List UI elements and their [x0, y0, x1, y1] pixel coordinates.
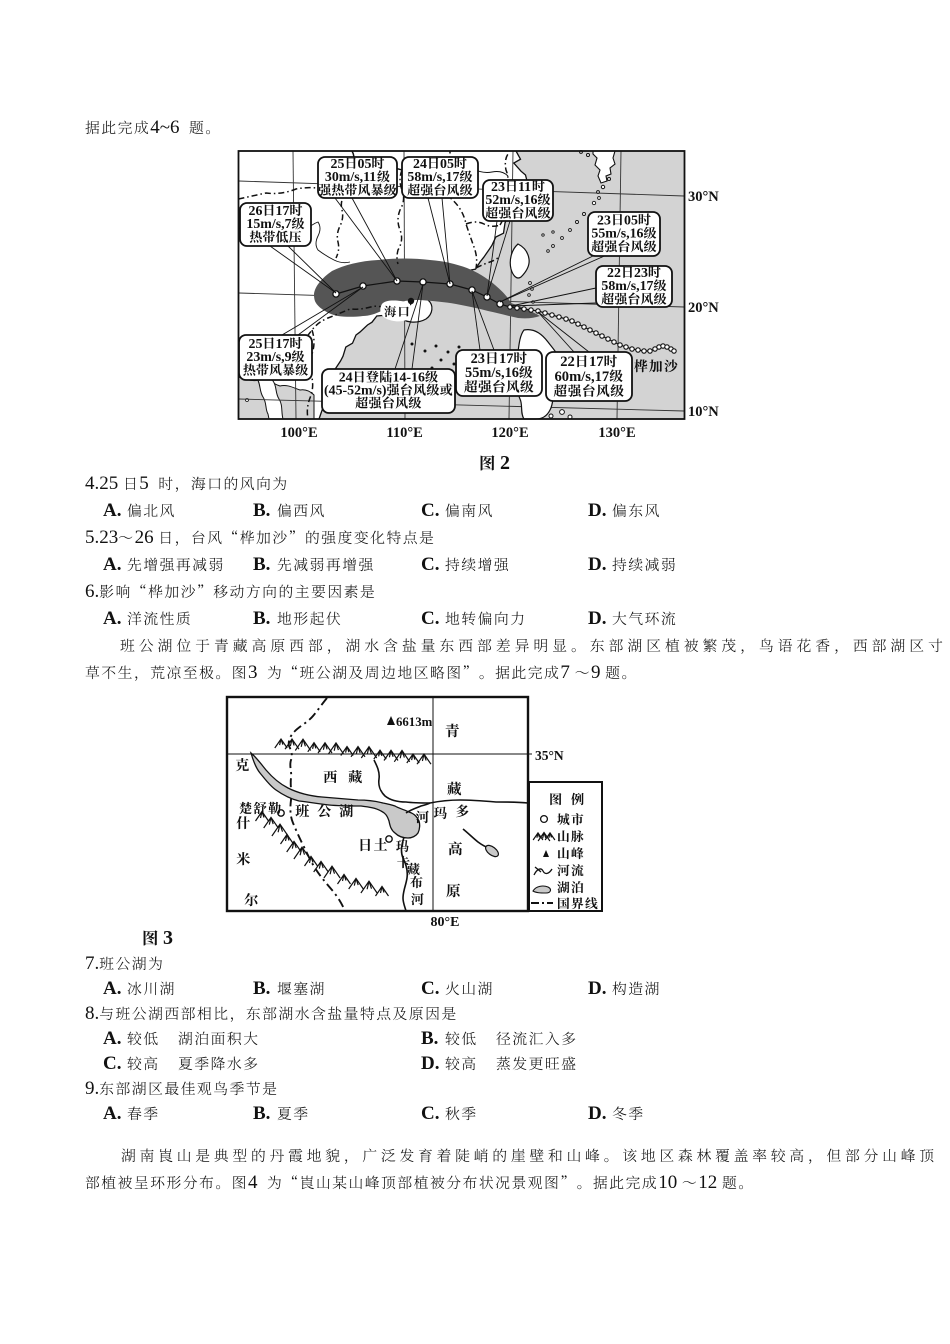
svg-text:12: 12 — [698, 1172, 717, 1193]
svg-text:2: 2 — [500, 452, 510, 474]
svg-text:A.: A. — [103, 608, 121, 629]
svg-text:3: 3 — [248, 662, 258, 683]
svg-text:D.: D. — [588, 1103, 606, 1124]
svg-text:6.: 6. — [85, 581, 99, 602]
svg-text:(45-52m/s): (45-52m/s) — [324, 384, 387, 399]
svg-text:B.: B. — [253, 978, 270, 999]
svg-text:5: 5 — [139, 473, 149, 494]
svg-text:120°E: 120°E — [491, 425, 528, 441]
svg-text:110°E: 110°E — [386, 425, 422, 441]
svg-text:4~6: 4~6 — [150, 117, 179, 138]
svg-text:30°N: 30°N — [688, 189, 719, 205]
svg-text:15m/s,7: 15m/s,7 — [246, 217, 291, 232]
svg-text:22: 22 — [560, 354, 575, 370]
svg-text:30m/s,11: 30m/s,11 — [325, 170, 376, 185]
svg-text:6613m: 6613m — [396, 715, 433, 729]
svg-text:C.: C. — [421, 554, 439, 575]
svg-text:C.: C. — [103, 1053, 121, 1074]
svg-text:9.: 9. — [85, 1078, 99, 1099]
svg-text:4: 4 — [248, 1172, 258, 1193]
svg-text:A.: A. — [103, 1028, 121, 1049]
svg-text:A.: A. — [103, 978, 121, 999]
svg-text:130°E: 130°E — [598, 425, 635, 441]
svg-text:10°N: 10°N — [688, 404, 719, 420]
svg-text:B.: B. — [253, 608, 270, 629]
svg-text:9: 9 — [591, 662, 601, 683]
svg-text:7.: 7. — [85, 953, 99, 974]
svg-text:17: 17 — [589, 354, 604, 370]
svg-text:20°N: 20°N — [688, 300, 719, 316]
svg-text:C.: C. — [421, 500, 439, 521]
svg-text:D.: D. — [588, 608, 606, 629]
svg-text:80°E: 80°E — [431, 915, 460, 930]
svg-text:A.: A. — [103, 500, 121, 521]
svg-text:C.: C. — [421, 608, 439, 629]
svg-text:A.: A. — [103, 1103, 121, 1124]
svg-text:23m/s,9: 23m/s,9 — [246, 350, 291, 365]
svg-text:D.: D. — [588, 500, 606, 521]
svg-text:A.: A. — [103, 554, 121, 575]
svg-text:26: 26 — [135, 527, 154, 548]
svg-text:55m/s,16: 55m/s,16 — [465, 365, 519, 381]
svg-text:D.: D. — [588, 554, 606, 575]
svg-text:10: 10 — [658, 1172, 677, 1193]
svg-text:5.23: 5.23 — [85, 527, 118, 548]
svg-text:58m/s,17: 58m/s,17 — [407, 170, 459, 185]
svg-text:D.: D. — [421, 1053, 439, 1074]
svg-text:8.: 8. — [85, 1003, 99, 1024]
svg-text:35°N: 35°N — [535, 748, 564, 763]
svg-text:55m/s,16: 55m/s,16 — [591, 227, 643, 242]
svg-text:B.: B. — [253, 1103, 270, 1124]
svg-text:60m/s,17: 60m/s,17 — [555, 369, 610, 385]
svg-text:C.: C. — [421, 1103, 439, 1124]
svg-text:52m/s,16: 52m/s,16 — [485, 193, 537, 208]
svg-text:B.: B. — [253, 500, 270, 521]
svg-text:B.: B. — [253, 554, 270, 575]
svg-text:D.: D. — [588, 978, 606, 999]
svg-text:14-16: 14-16 — [393, 371, 425, 386]
svg-text:C.: C. — [421, 978, 439, 999]
svg-text:100°E: 100°E — [280, 425, 317, 441]
svg-text:58m/s,17: 58m/s,17 — [601, 279, 653, 294]
svg-text:7: 7 — [560, 662, 570, 683]
svg-text:4.25: 4.25 — [85, 473, 118, 494]
svg-text:B.: B. — [421, 1028, 438, 1049]
svg-text:3: 3 — [163, 927, 173, 949]
